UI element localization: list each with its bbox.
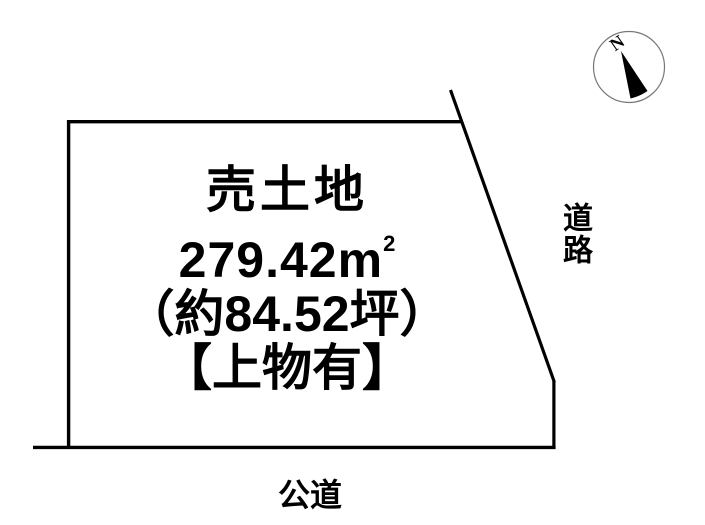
- plot-note: 【上物有】: [77, 341, 497, 395]
- land-plot-diagram: 売土地 279.42m2 （約84.52坪） 【上物有】 道路 公道 N: [0, 0, 705, 525]
- plot-title: 売土地: [77, 163, 497, 217]
- plot-area-sqm: 279.42m2: [77, 217, 497, 287]
- plot-label: 売土地 279.42m2 （約84.52坪） 【上物有】: [77, 163, 497, 395]
- north-arrow-icon: [621, 51, 648, 99]
- road-label-bottom: 公道: [260, 470, 360, 516]
- road-label-right: 道路: [556, 202, 592, 266]
- plot-area-sqm-value: 279.42m: [179, 232, 383, 288]
- plot-area-tsubo: （約84.52坪）: [77, 287, 497, 341]
- north-label: N: [606, 31, 628, 55]
- plot-area-sqm-superscript: 2: [383, 231, 395, 256]
- compass: N: [591, 29, 667, 105]
